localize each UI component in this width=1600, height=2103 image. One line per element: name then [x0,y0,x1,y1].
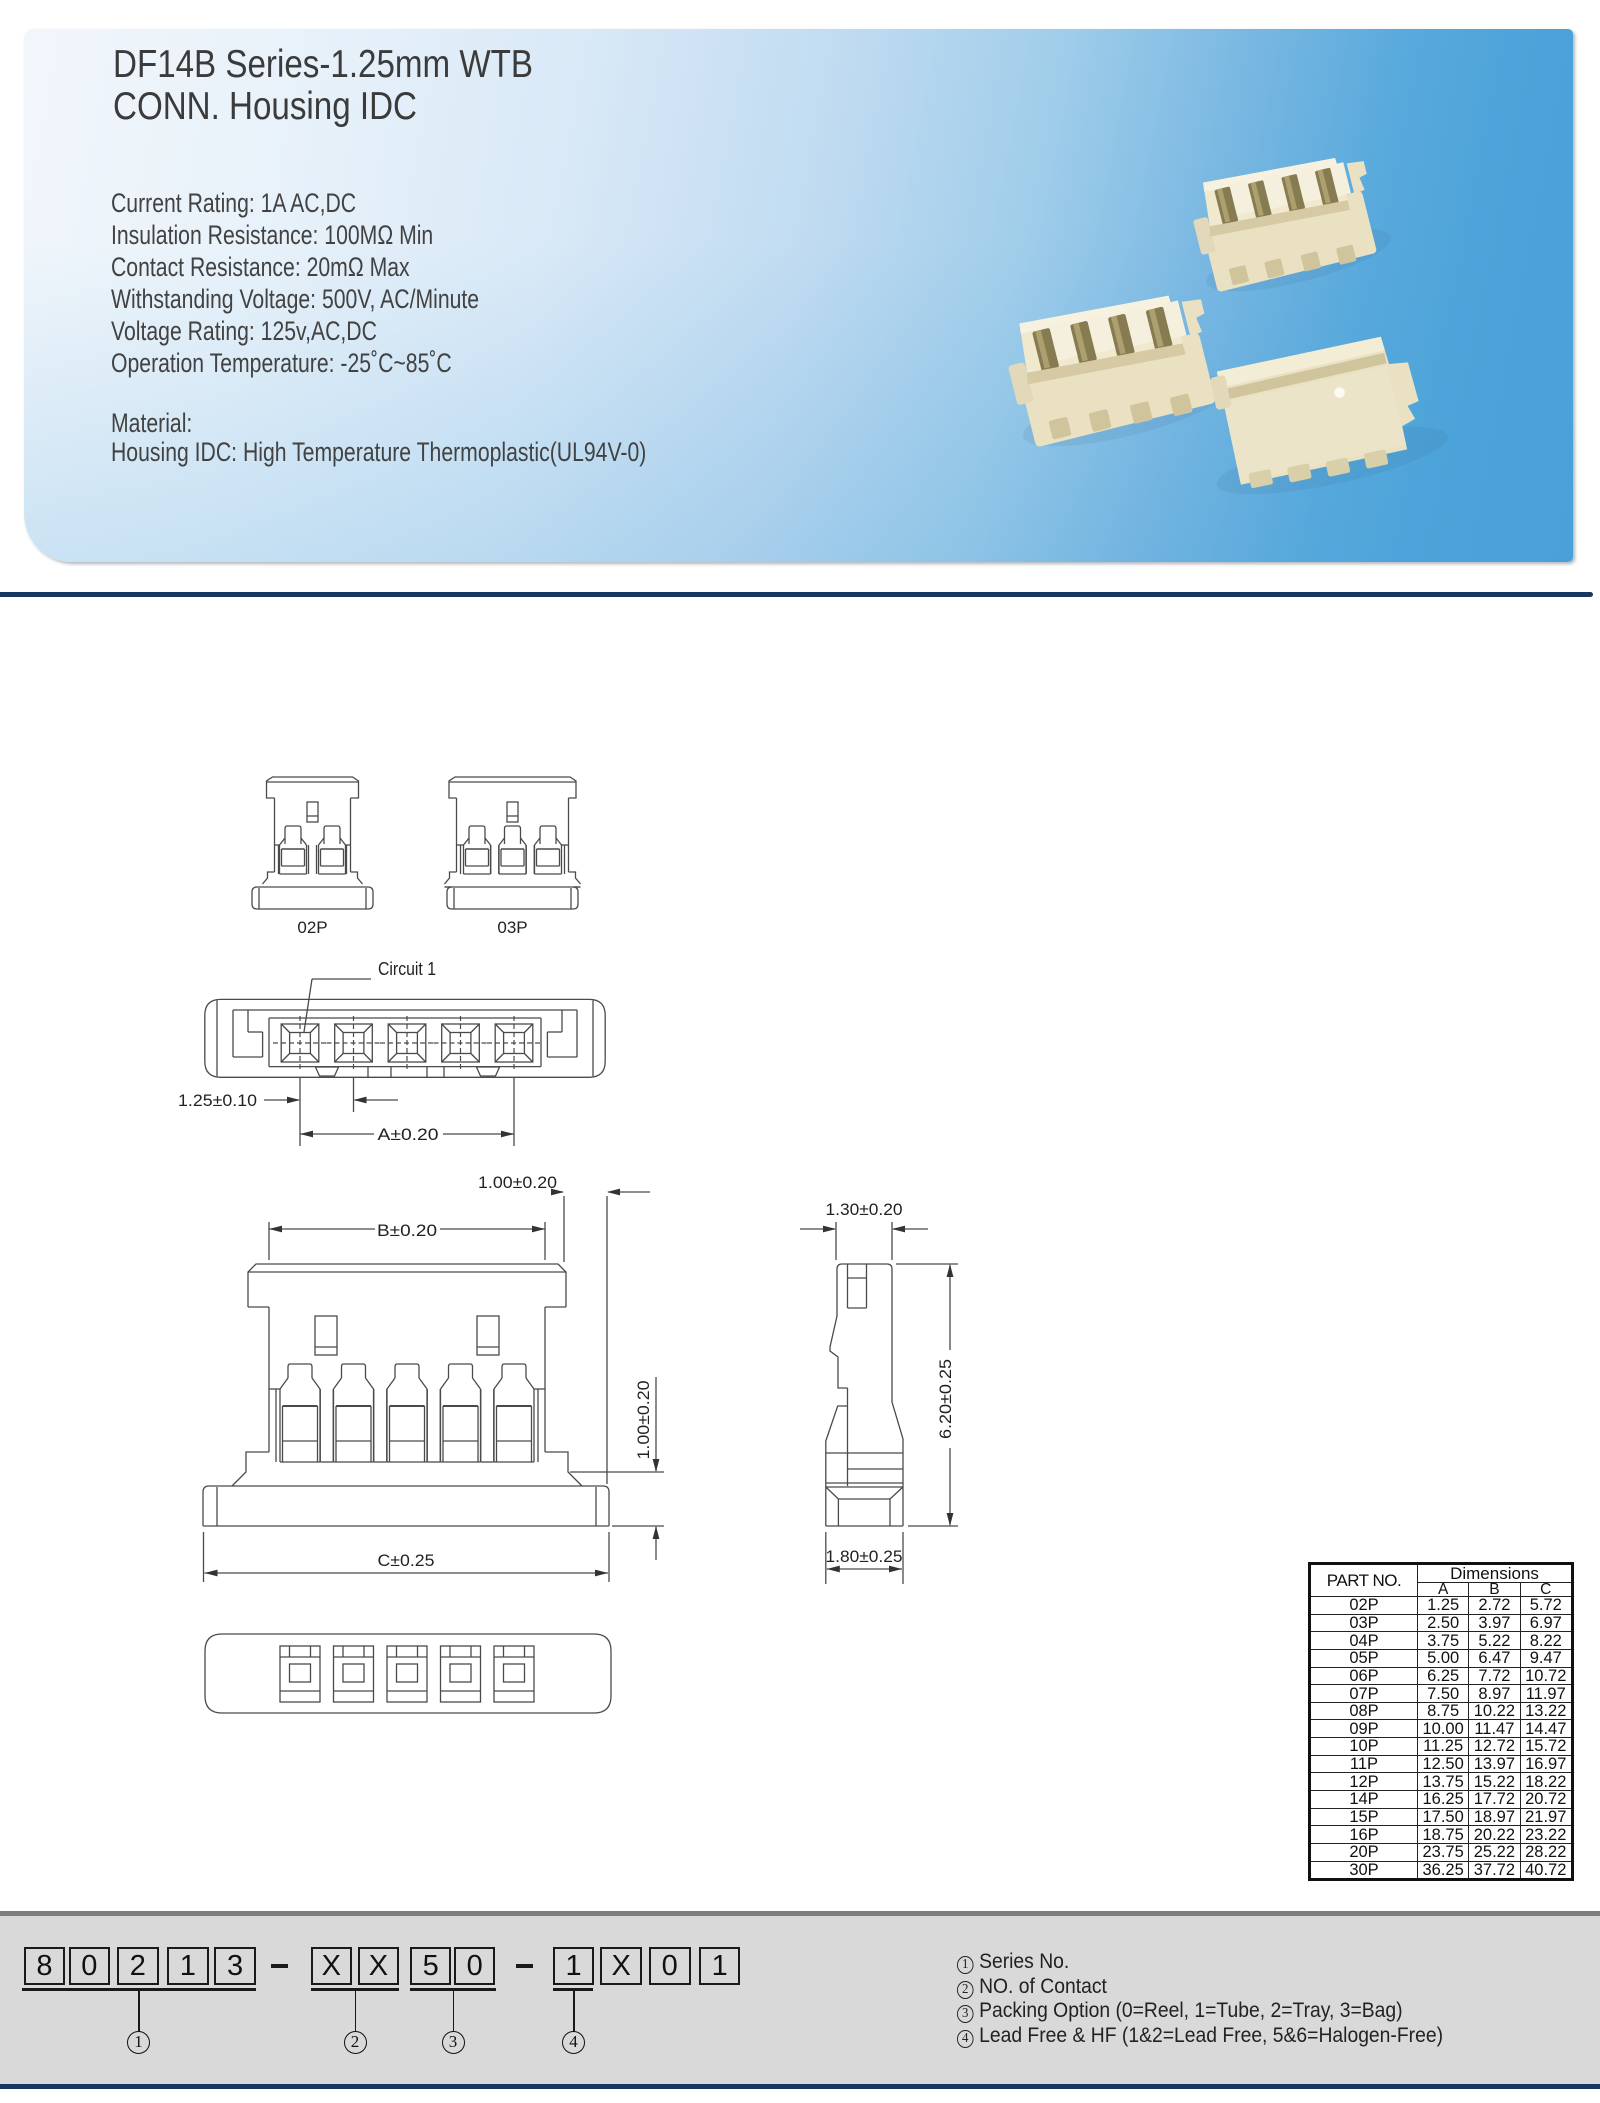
svg-text:Circuit 1: Circuit 1 [378,959,436,979]
svg-text:1.25±0.10: 1.25±0.10 [178,1091,257,1110]
svg-text:1.00±0.20: 1.00±0.20 [634,1381,653,1460]
svg-text:C±0.25: C±0.25 [378,1551,435,1570]
svg-text:1.80±0.25: 1.80±0.25 [826,1547,903,1566]
svg-text:02P: 02P [297,918,327,937]
svg-text:B±0.20: B±0.20 [377,1221,437,1240]
svg-text:6.20±0.25: 6.20±0.25 [936,1359,955,1439]
svg-text:A±0.20: A±0.20 [378,1125,439,1144]
svg-text:03P: 03P [497,918,527,937]
svg-text:1.30±0.20: 1.30±0.20 [826,1200,903,1219]
svg-text:1.00±0.20: 1.00±0.20 [478,1173,557,1192]
